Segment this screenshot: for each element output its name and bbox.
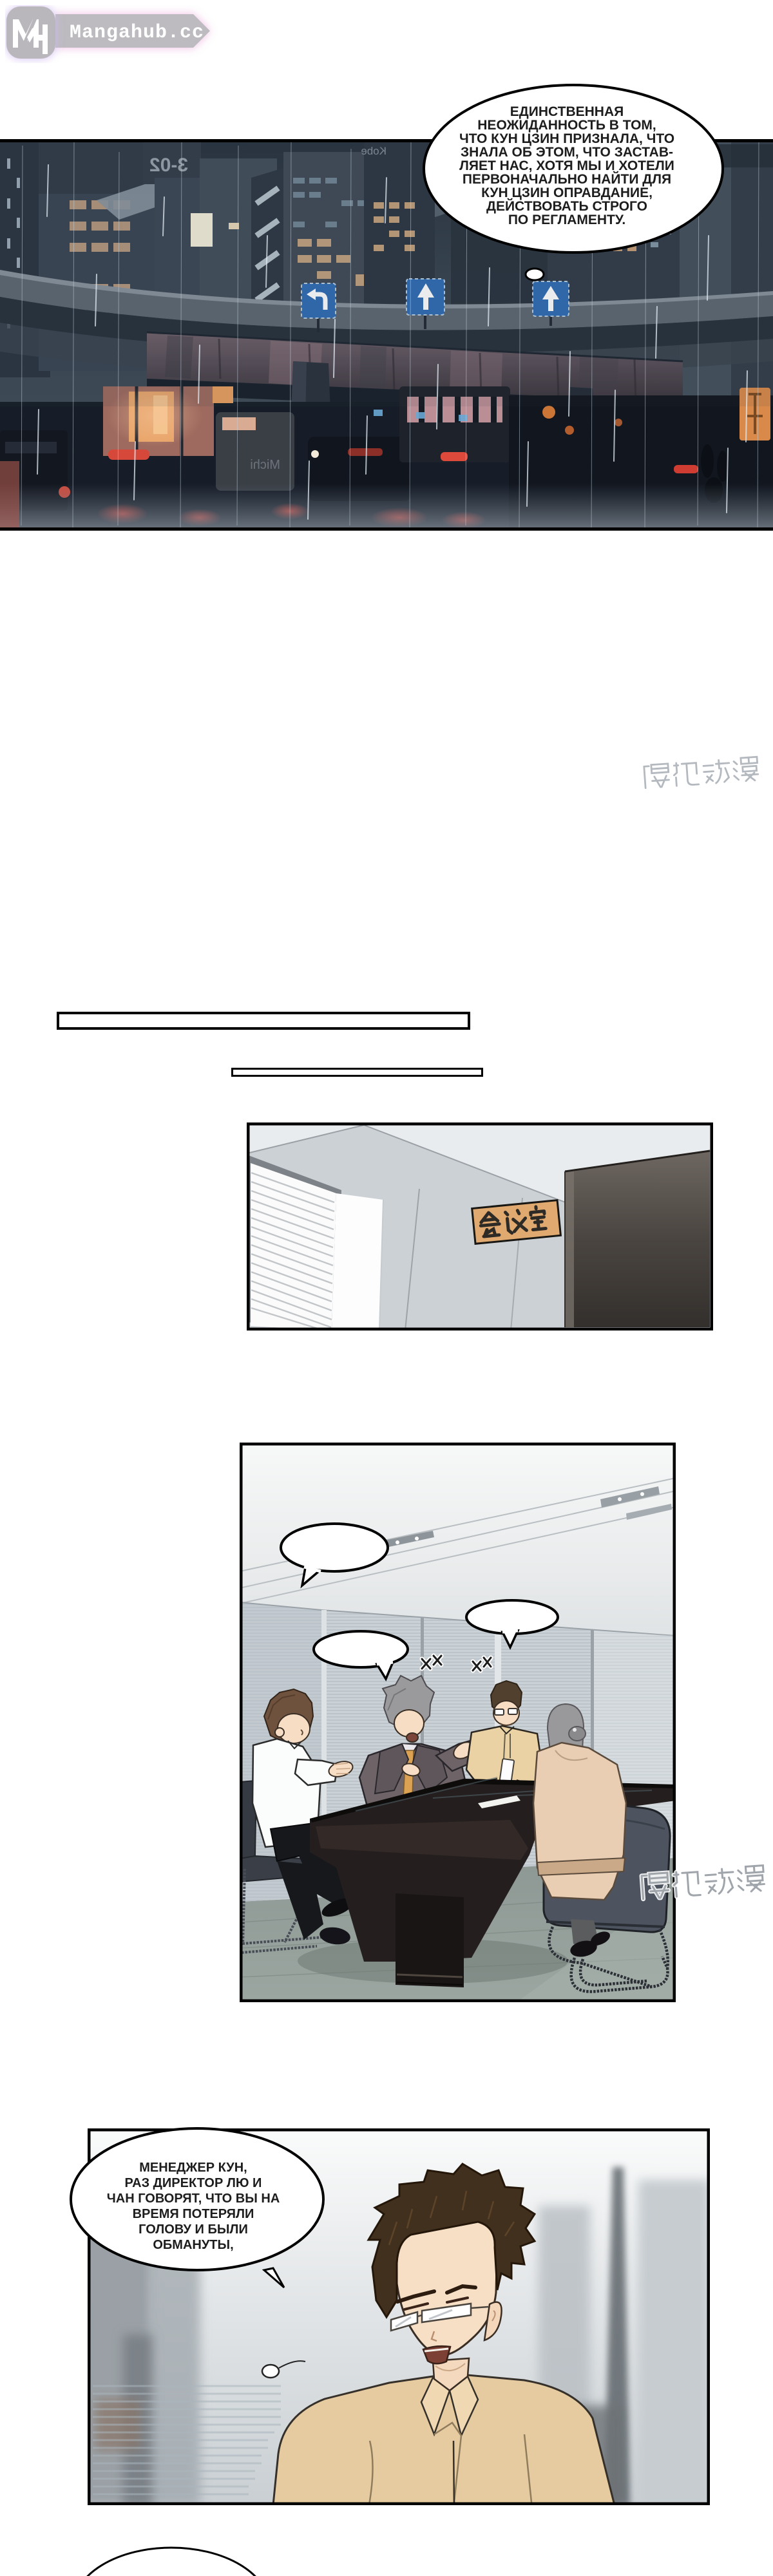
svg-text:Mangahub.cc: Mangahub.cc	[70, 22, 204, 44]
svg-text:Michi: Michi	[250, 458, 280, 472]
